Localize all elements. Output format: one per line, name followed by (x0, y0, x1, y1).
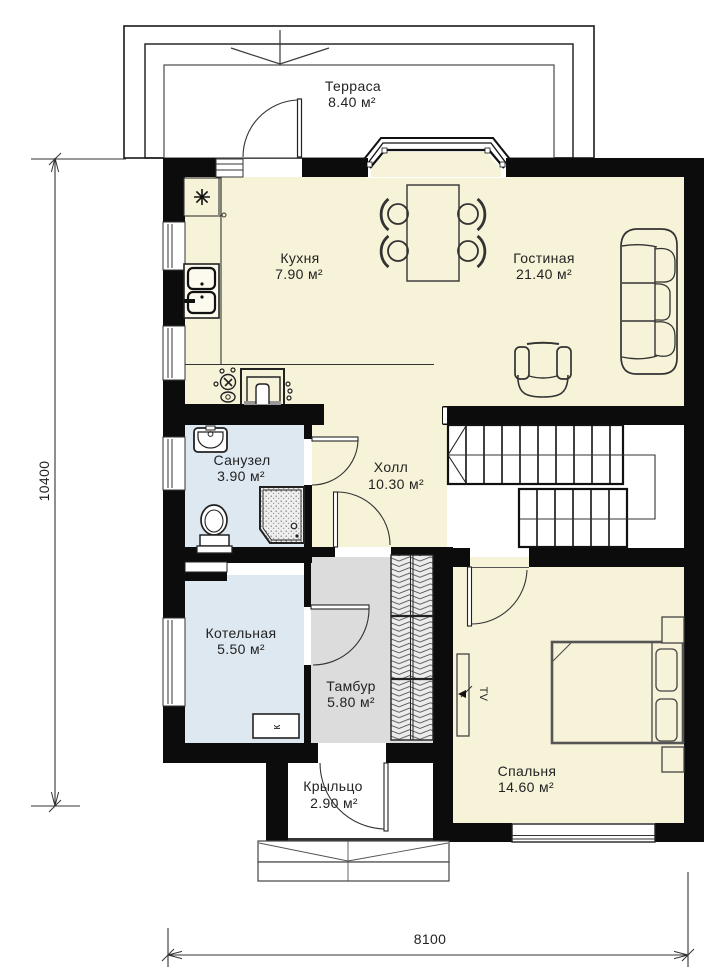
svg-text:Санузел: Санузел (214, 452, 271, 468)
svg-text:5.50 м²: 5.50 м² (217, 641, 265, 657)
svg-text:8.40 м²: 8.40 м² (328, 94, 376, 110)
svg-text:21.40 м²: 21.40 м² (516, 266, 572, 282)
svg-text:Гостиная: Гостиная (513, 250, 575, 266)
svg-text:10400: 10400 (36, 461, 52, 502)
svg-text:Спальня: Спальня (498, 763, 557, 779)
svg-text:2.90 м²: 2.90 м² (310, 795, 358, 811)
svg-text:Крыльцо: Крыльцо (303, 778, 363, 794)
svg-text:8100: 8100 (414, 931, 447, 947)
svg-text:к: к (271, 724, 283, 729)
svg-text:Терраса: Терраса (325, 78, 381, 94)
svg-text:14.60 м²: 14.60 м² (498, 779, 554, 795)
svg-text:3.90 м²: 3.90 м² (217, 468, 265, 484)
svg-text:10.30 м²: 10.30 м² (368, 476, 424, 492)
svg-text:Котельная: Котельная (206, 625, 277, 641)
svg-text:5.80 м²: 5.80 м² (327, 694, 375, 710)
svg-text:7.90 м²: 7.90 м² (275, 266, 323, 282)
svg-text:Холл: Холл (374, 459, 408, 475)
svg-text:TV: TV (477, 687, 489, 702)
svg-text:Кухня: Кухня (280, 250, 319, 266)
svg-text:Тамбур: Тамбур (326, 678, 376, 694)
